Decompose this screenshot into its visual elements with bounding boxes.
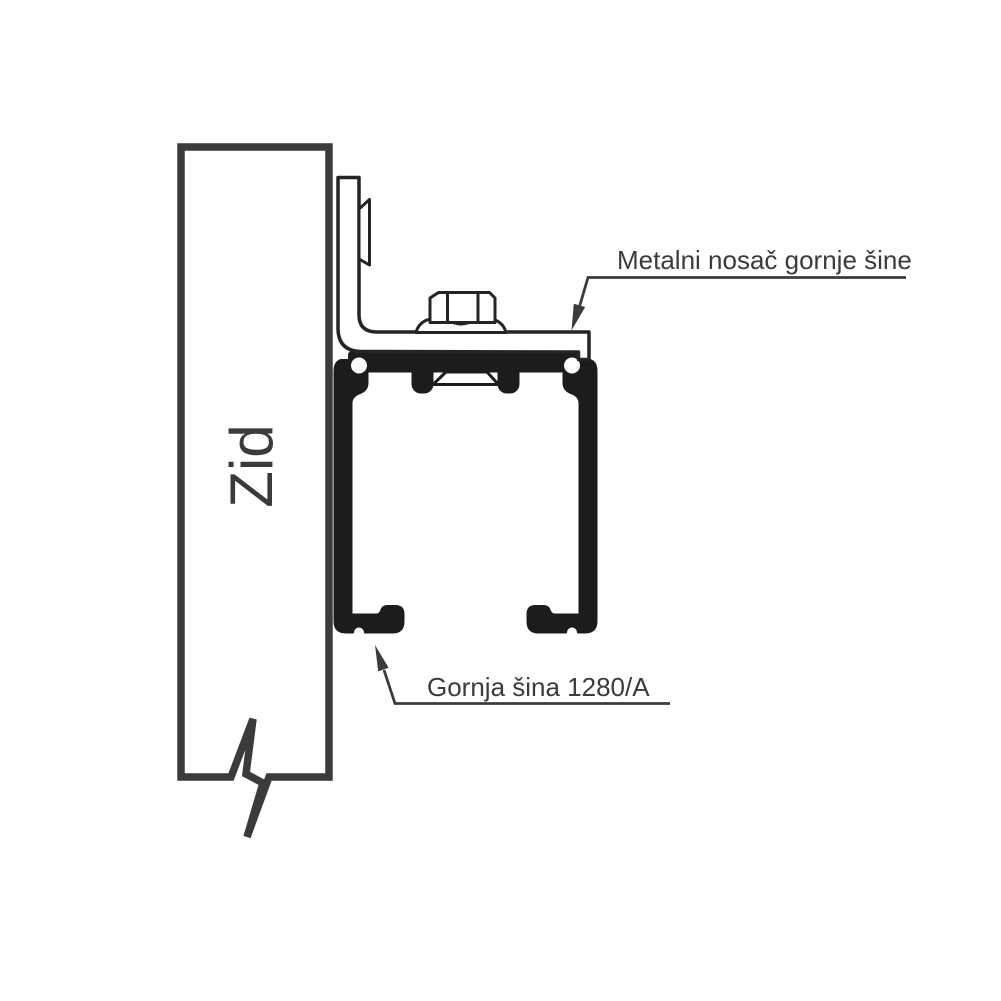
wall-label: Zid [218,424,285,507]
rail-leader-arrowhead [375,645,389,671]
callout-bracket: Metalni nosač gornje šine [572,245,912,331]
rail-tooth-left [413,360,433,393]
rail-profile-left [335,360,404,633]
callout-rail: Gornja šina 1280/A [375,645,670,704]
bolt-hex-head [430,293,495,323]
rail-tooth-right [499,360,519,393]
bracket-wall-screw [359,200,370,266]
bracket-callout-label: Metalni nosač gornje šine [617,245,912,275]
rail-callout-label: Gornja šina 1280/A [427,672,650,702]
top-rail-profile [335,352,597,633]
mounting-bracket [338,178,589,360]
bracket-leader-arrowhead [572,304,586,331]
technical-diagram: Metalni nosač gornje šine Gornja šina 12… [0,0,1001,1001]
rail-screw-seat [433,372,499,385]
rail-mounting-band [349,352,576,372]
bracket-leader-line [580,278,906,306]
rail-profile-right [528,360,597,633]
rail-notch-left [351,358,367,374]
diagram-canvas: Metalni nosač gornje šine Gornja šina 12… [0,0,1001,1001]
